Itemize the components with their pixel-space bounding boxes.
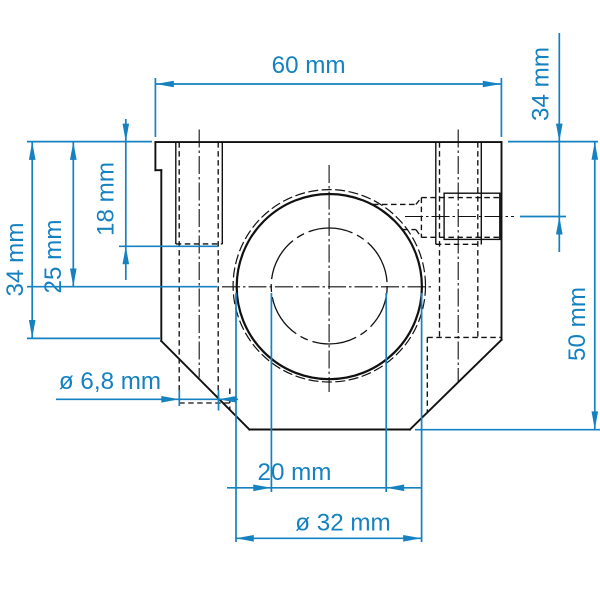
svg-text:34 mm: 34 mm [528,47,555,121]
svg-text:ø 6,8 mm: ø 6,8 mm [59,368,161,395]
svg-text:25 mm: 25 mm [40,220,67,294]
svg-text:ø 32 mm: ø 32 mm [295,510,390,537]
svg-text:18 mm: 18 mm [93,162,120,236]
svg-text:50 mm: 50 mm [564,287,591,361]
svg-text:34 mm: 34 mm [2,223,29,297]
svg-text:20 mm: 20 mm [258,459,332,486]
svg-text:60 mm: 60 mm [272,52,346,79]
